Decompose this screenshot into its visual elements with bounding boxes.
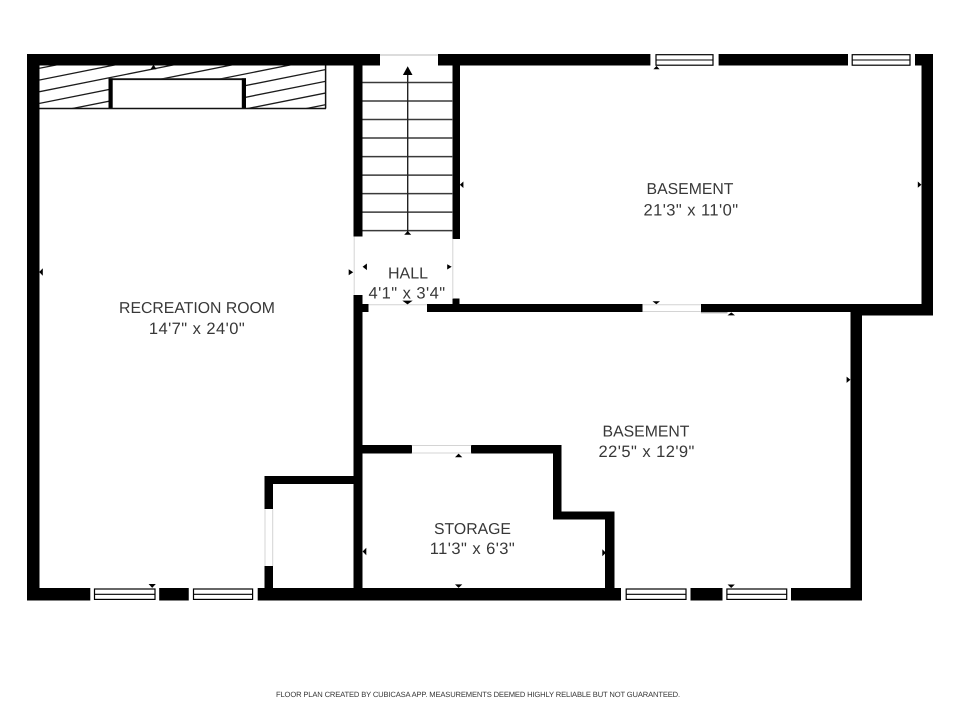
svg-text:22'5" x 12'9": 22'5" x 12'9": [599, 443, 695, 461]
svg-text:RECREATION ROOM: RECREATION ROOM: [119, 300, 275, 317]
svg-text:11'3" x 6'3": 11'3" x 6'3": [430, 540, 516, 558]
svg-text:BASEMENT: BASEMENT: [647, 181, 734, 198]
svg-text:HALL: HALL: [388, 266, 428, 283]
svg-text:21'3" x 11'0": 21'3" x 11'0": [643, 202, 738, 220]
svg-text:BASEMENT: BASEMENT: [603, 424, 690, 441]
svg-text:4'1" x 3'4": 4'1" x 3'4": [368, 285, 445, 303]
svg-text:14'7" x 24'0": 14'7" x 24'0": [149, 320, 245, 338]
svg-text:STORAGE: STORAGE: [434, 521, 511, 538]
svg-text:FLOOR PLAN CREATED BY CUBICASA: FLOOR PLAN CREATED BY CUBICASA APP. MEAS…: [276, 690, 680, 699]
